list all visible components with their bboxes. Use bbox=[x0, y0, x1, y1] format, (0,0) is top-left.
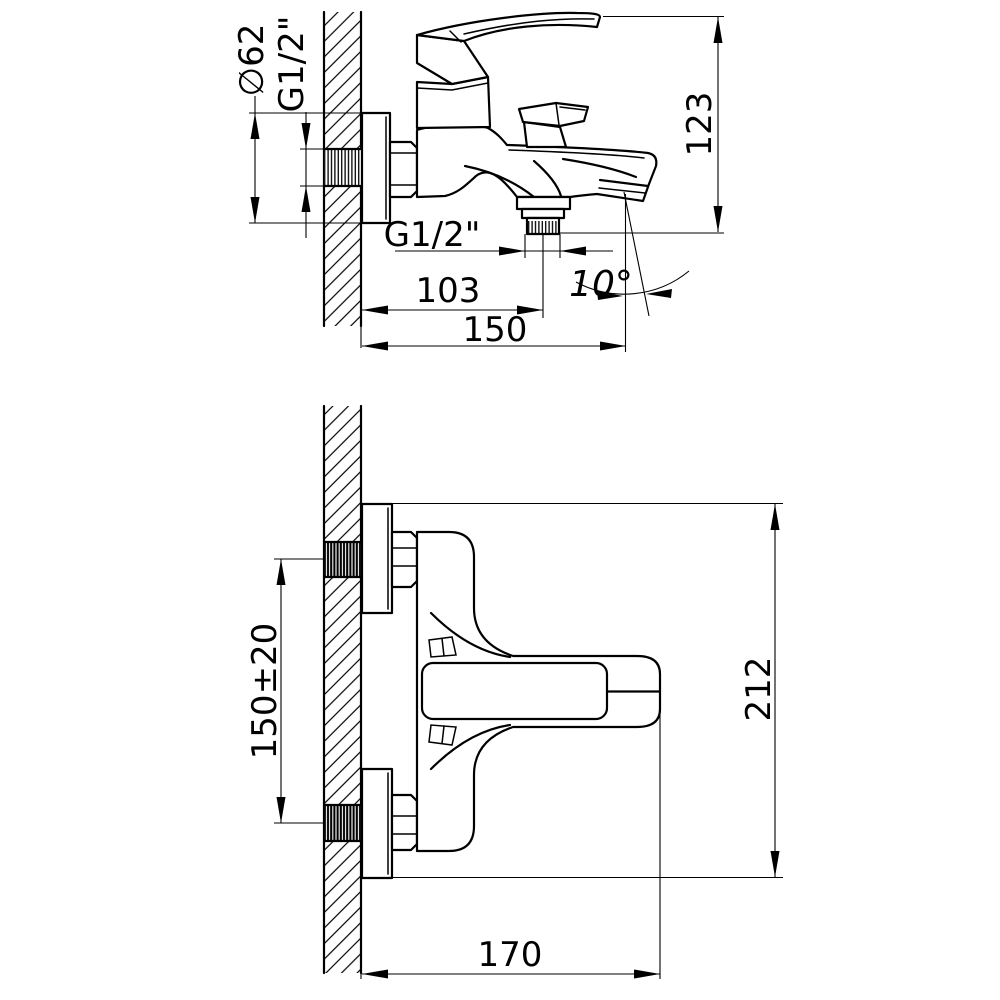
outlet-thread-label: G1/2" bbox=[384, 215, 481, 255]
overall-height-label: 212 bbox=[739, 657, 779, 722]
technical-drawing-page: ∅62 G1/2" 123 G1/2" bbox=[0, 0, 1000, 1000]
wall-flange bbox=[362, 113, 390, 223]
wall-thread-label: G1/2" bbox=[272, 16, 312, 113]
overall-reach-label: 170 bbox=[478, 935, 543, 975]
handle-plan bbox=[422, 663, 607, 719]
inlet-thread-top bbox=[324, 542, 361, 577]
wall-section-plan bbox=[324, 406, 361, 973]
connection-nut-side bbox=[390, 142, 417, 197]
escutcheon-plate-bottom bbox=[362, 769, 392, 878]
wall-thread-side bbox=[324, 149, 361, 186]
outlet-offset-label: 103 bbox=[416, 271, 481, 311]
spout-angle-label: 10° bbox=[569, 264, 633, 305]
flange-diameter-label: ∅62 bbox=[232, 24, 272, 97]
connection-nut-bottom-plan bbox=[392, 795, 417, 850]
inlet-spacing-label: 150±20 bbox=[245, 623, 285, 760]
spout-reach-label: 150 bbox=[463, 310, 528, 350]
inlet-thread-bottom bbox=[324, 805, 361, 841]
bath-mixer-dimension-drawing: ∅62 G1/2" 123 G1/2" bbox=[0, 0, 1000, 1000]
body-height-label: 123 bbox=[680, 92, 720, 157]
connection-nut-top-plan bbox=[392, 532, 417, 587]
escutcheon-plate-top bbox=[362, 504, 392, 613]
